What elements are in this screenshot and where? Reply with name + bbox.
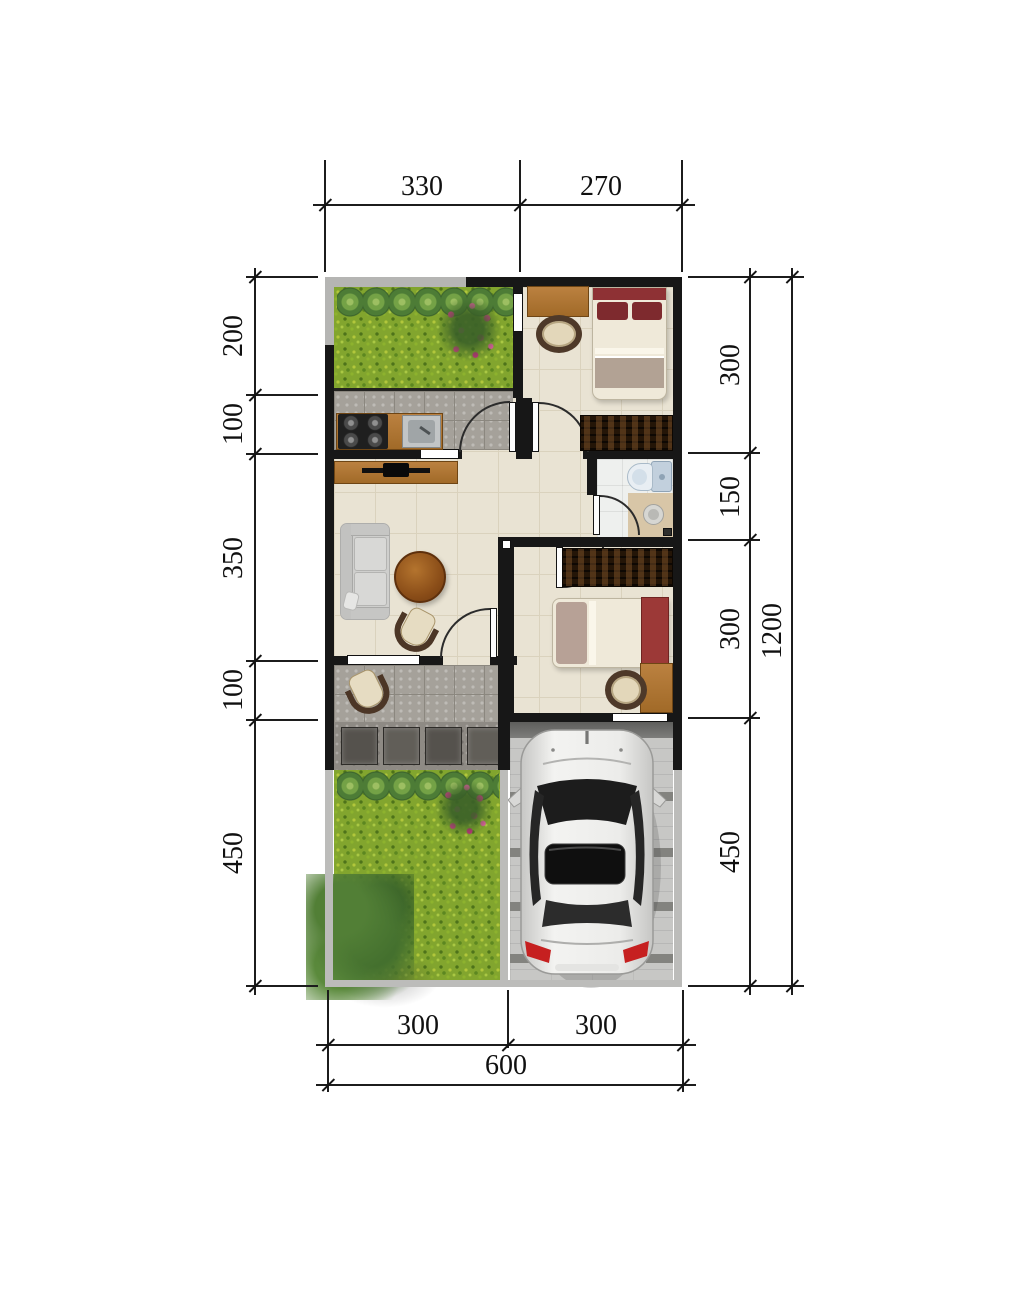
dim-label-right-3: 450 <box>716 792 746 912</box>
dim-ext-line <box>688 276 804 278</box>
dimension-annotations: 330 270 200 100 350 100 450 <box>0 0 1032 1292</box>
dim-line-top <box>313 204 695 206</box>
dim-label-right-1: 150 <box>716 437 746 557</box>
dim-ext-line <box>327 990 329 1092</box>
dim-line-right <box>749 268 751 995</box>
dim-line-right-total <box>791 268 793 995</box>
dim-line-bottom-total <box>316 1084 696 1086</box>
dim-ext-line <box>519 160 521 272</box>
dim-label-right-2: 300 <box>716 569 746 689</box>
dim-label-bottom-total: 600 <box>446 1051 566 1081</box>
dim-label-left-4: 450 <box>219 793 249 913</box>
dim-label-top-0: 330 <box>362 172 482 202</box>
dim-ext-line <box>507 990 509 1048</box>
dim-label-right-total: 1200 <box>758 571 788 691</box>
dim-label-left-2: 350 <box>219 498 249 618</box>
dim-label-bottom-0: 300 <box>358 1011 478 1041</box>
dim-label-left-3: 100 <box>219 630 249 750</box>
floor-plan-canvas: 330 270 200 100 350 100 450 <box>0 0 1032 1292</box>
dim-ext-line <box>682 990 684 1092</box>
dim-ext-line <box>688 985 804 987</box>
dim-ext-line <box>681 160 683 272</box>
dim-label-top-1: 270 <box>541 172 661 202</box>
dim-label-right-0: 300 <box>716 305 746 425</box>
dim-line-left <box>254 268 256 995</box>
dim-ext-line <box>324 160 326 272</box>
dim-label-left-1: 100 <box>219 364 249 484</box>
dim-label-bottom-1: 300 <box>536 1011 656 1041</box>
